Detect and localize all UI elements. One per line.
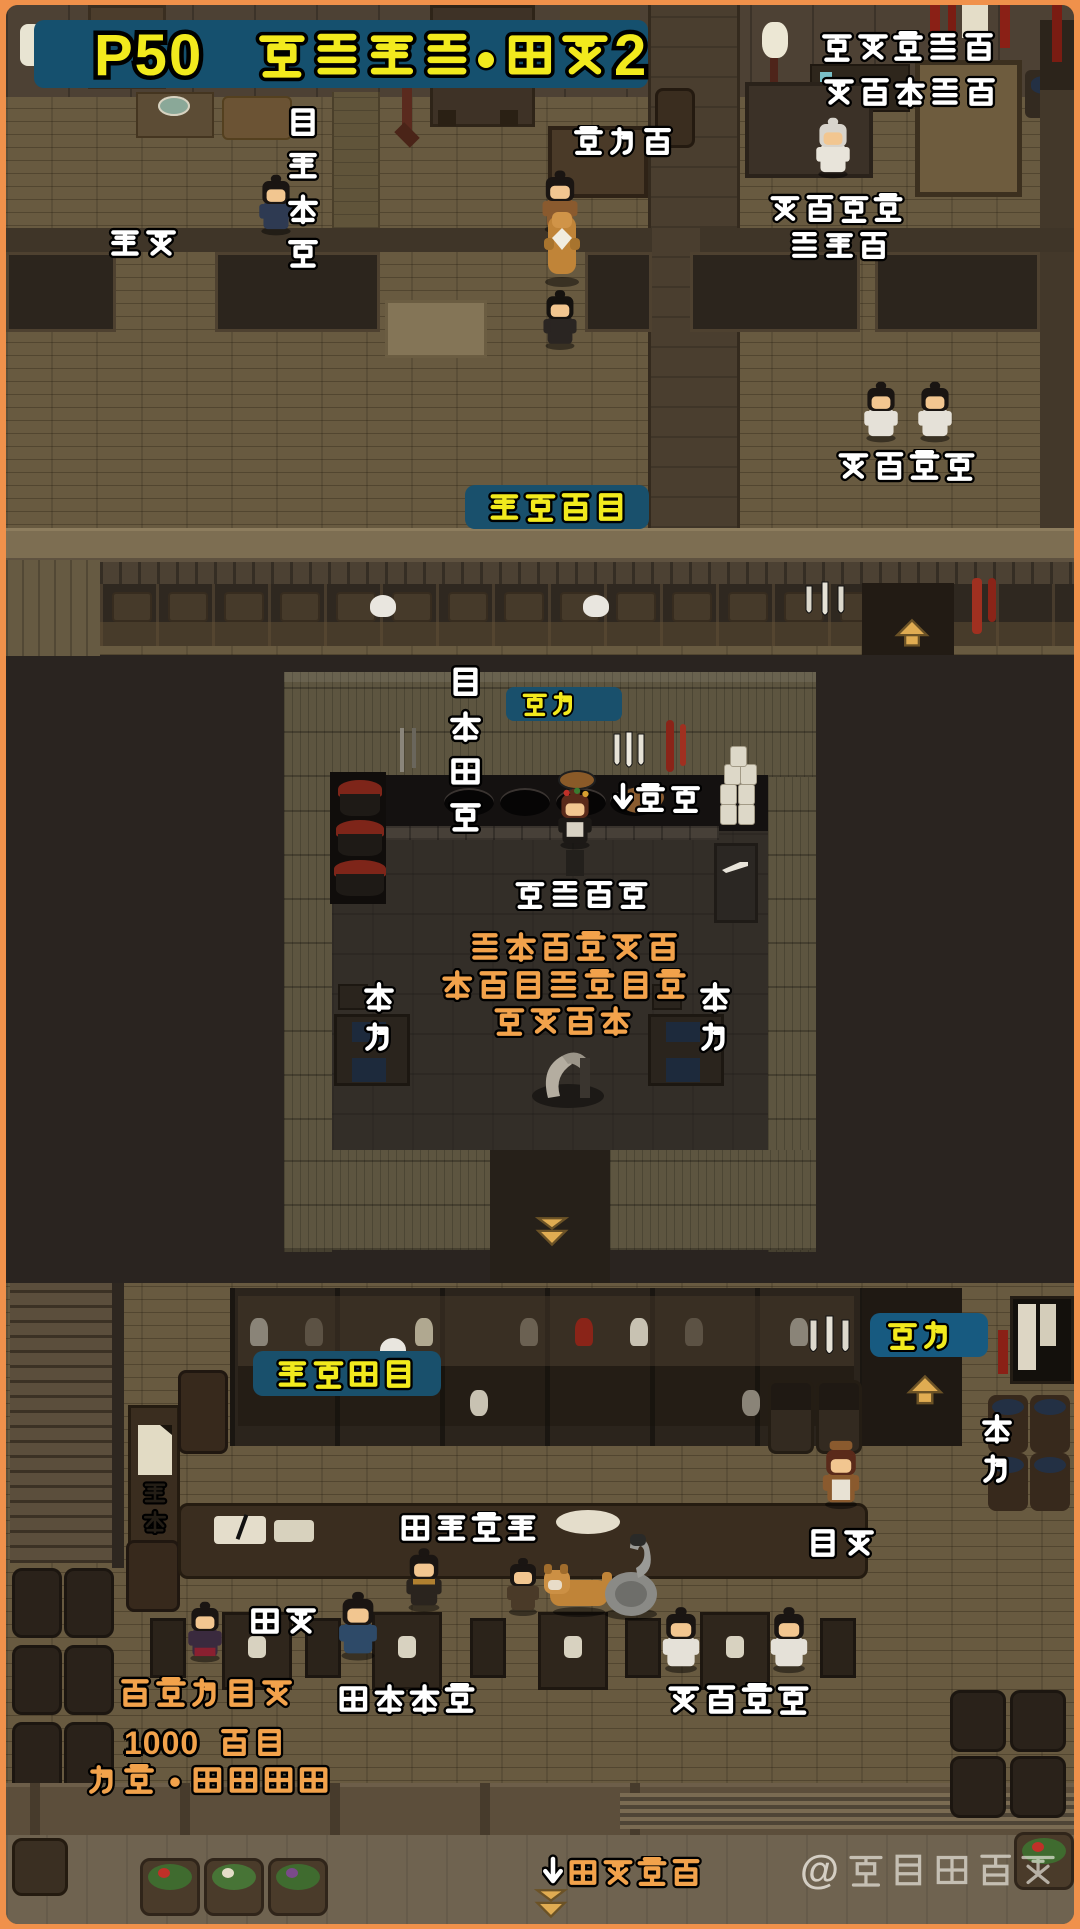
svg-text:P50: P50 [94,23,203,88]
svg-text:2: 2 [614,23,646,88]
